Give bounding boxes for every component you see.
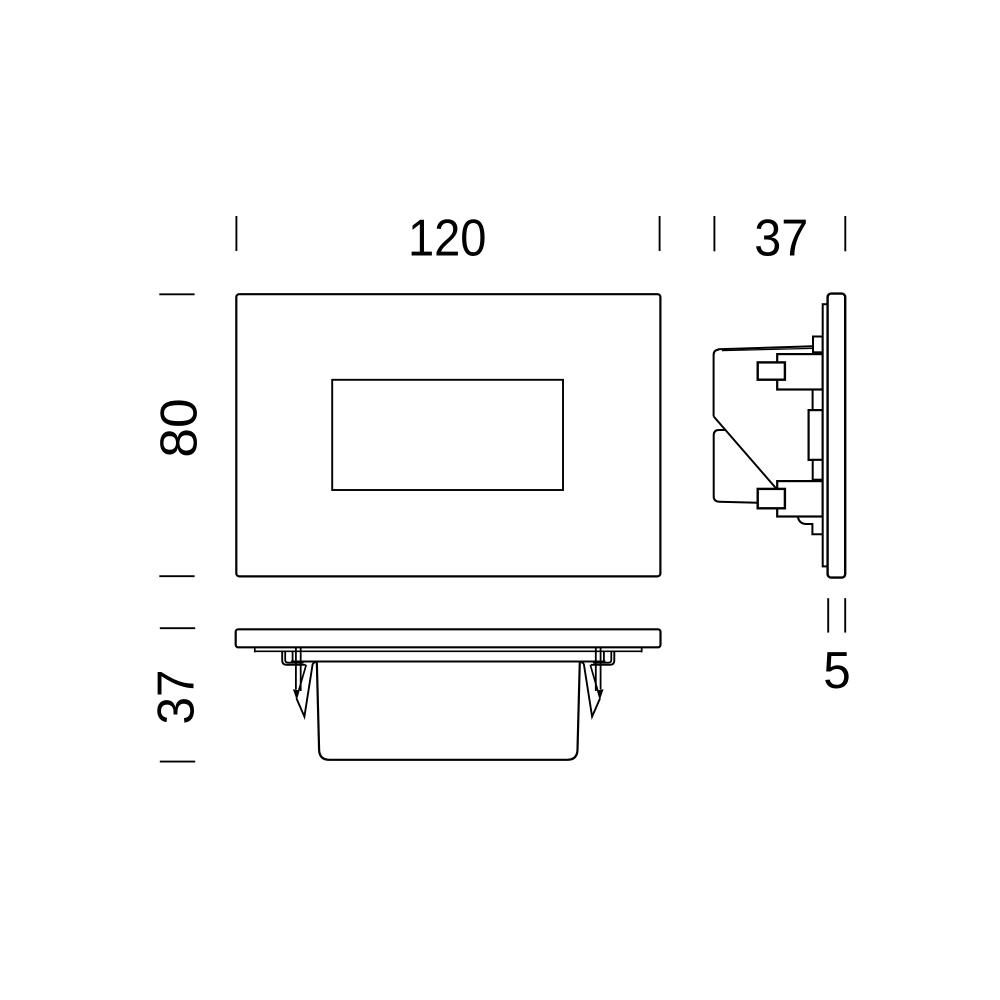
svg-text:37: 37 xyxy=(754,210,808,268)
svg-text:5: 5 xyxy=(823,642,851,700)
svg-text:80: 80 xyxy=(150,398,208,458)
svg-text:37: 37 xyxy=(148,670,206,725)
svg-text:120: 120 xyxy=(408,210,487,268)
